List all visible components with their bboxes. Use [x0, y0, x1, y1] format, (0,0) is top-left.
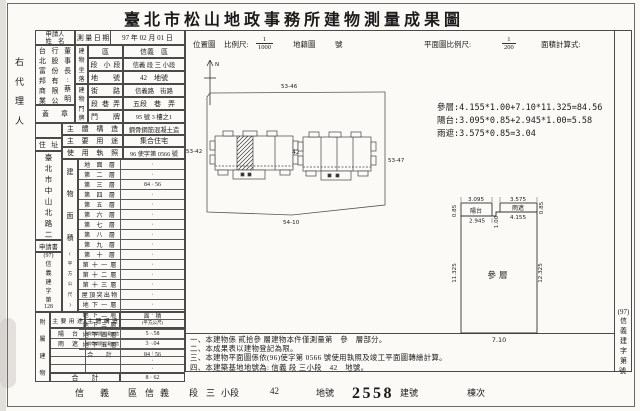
annex-table-row: 雨遮鋼骨鋼筋混凝土造3 · 04: [51, 339, 184, 349]
char: 段: [114, 60, 121, 70]
char: 章: [61, 109, 68, 119]
char: 份: [52, 66, 59, 76]
char: 第: [84, 200, 90, 209]
footer-segment: 小段: [221, 386, 239, 399]
char: 四: [96, 190, 102, 199]
street-value: 信義路 街路: [123, 84, 185, 97]
char: 小: [104, 60, 111, 70]
char: [102, 112, 109, 122]
char: 台: [72, 329, 78, 338]
floor-area-value: ·: [121, 280, 184, 289]
char: 層: [109, 250, 115, 259]
char: 義: [45, 268, 51, 277]
annex-structure-header: 主體構造: [85, 312, 120, 328]
agent-label: 右代理人: [13, 52, 26, 130]
char: 第: [84, 210, 90, 219]
char: 下: [92, 300, 98, 309]
section-value: 信義 段 三 小段: [123, 58, 185, 71]
floor-table-row: 第八層·: [79, 230, 184, 240]
scale-numerator: 1: [263, 36, 266, 43]
footer-segment: 段: [189, 386, 198, 399]
annex-structure-value: 鋼骨鋼筋混凝土造: [86, 339, 121, 348]
address-value: 臺北市中山北路二段50號: [35, 151, 62, 240]
floor-area-value: ·: [121, 160, 184, 169]
char: 門: [78, 104, 84, 113]
char: 八: [96, 230, 102, 239]
char: 七: [96, 220, 102, 229]
floor-label: 地面層: [79, 160, 121, 169]
char: 十: [92, 280, 98, 289]
char: 北: [39, 56, 46, 66]
char: 第: [83, 260, 89, 269]
char: 五: [96, 200, 102, 209]
footer-segment: 建號: [400, 386, 418, 399]
survey-date-label: 測量日期: [75, 30, 111, 45]
dim-canopy-width: 3.575: [510, 197, 526, 203]
floor-label: 第十二層: [79, 270, 121, 279]
section-label: 段 小段: [88, 58, 123, 71]
char: 業: [39, 96, 46, 105]
annex-area-header-line2: (平方公尺): [142, 320, 163, 326]
use-value: 集合住宅: [123, 135, 185, 147]
char: 中: [45, 185, 53, 196]
floor-table-row: 第十一層·: [79, 260, 184, 270]
address-blank-cell: [35, 123, 62, 138]
floor-label: 第四層: [79, 190, 121, 199]
char: 富: [39, 66, 46, 76]
char: 主: [67, 124, 74, 134]
applicant-name-columns: 台北富邦商業銀 行股份有限公司 董事長:蔡明忠: [36, 46, 74, 104]
char: 第: [83, 270, 89, 279]
number-value: 95 號 3 樓之1: [123, 110, 185, 123]
char: 附: [39, 317, 45, 326]
char: 義: [620, 326, 627, 336]
char: 路: [113, 86, 120, 96]
char: 量: [85, 33, 92, 43]
footer-segment: 義: [100, 386, 109, 399]
char: 十: [96, 250, 102, 259]
char: 平: [68, 261, 73, 267]
char: 邦: [39, 76, 46, 86]
canopy-label: 雨遮: [512, 204, 524, 212]
char: 途: [111, 136, 118, 146]
dim-step-height: 1.00: [494, 215, 500, 228]
char: 層: [110, 270, 116, 279]
floor-table-row: 地下一層·: [79, 300, 184, 310]
char: 理: [15, 94, 24, 107]
building-footprint-right: [298, 132, 376, 180]
applicant-name-col-2: 行股份有限公司: [49, 46, 62, 104]
char: 有: [52, 76, 59, 86]
char: 用: [96, 136, 103, 146]
entry-mark: [241, 173, 244, 176]
applicant-name-col-3: 董事長:蔡明忠: [61, 46, 74, 104]
entry-mark: [336, 174, 339, 177]
building-footprint-left: [210, 131, 298, 179]
char: 建: [78, 46, 84, 55]
char: 層: [110, 300, 116, 309]
boundary-label-top: 53-46: [281, 84, 298, 90]
footer-segment: 42: [270, 386, 279, 396]
char: 股: [52, 56, 59, 66]
char: 商: [39, 86, 46, 96]
char: 地: [84, 160, 90, 169]
applicant-header-line2: 姓 名: [46, 38, 65, 45]
survey-document-page: 臺北市松山地政事務所建物測量成果圖 右代理人 申請人 姓 名 台北富邦商業銀 行…: [0, 0, 640, 411]
cadastre-label: 地籍圖: [293, 39, 316, 50]
char: 面: [67, 211, 74, 221]
floor-table-row: 第四層·: [79, 190, 184, 200]
page-title: 臺北市松山地政事務所建物測量成果圖: [0, 6, 640, 30]
char: 門: [91, 112, 98, 122]
char: 董: [64, 46, 71, 56]
footer-segment: 信: [75, 386, 84, 399]
footer-segment: 義: [160, 386, 169, 399]
cadastre-sheet-label: 號: [335, 39, 343, 50]
license-value: 96 使字第 0566 號: [123, 147, 185, 159]
notes-section: 一、本建物係 貳拾參 層建物本件僅測量第 參 層部分。二、本成果表以建物登記為限…: [190, 334, 447, 371]
site-map-scale-label: 比例尺:: [224, 39, 249, 50]
char: 第: [45, 295, 51, 304]
char: 屬: [39, 334, 45, 343]
annex-side-label: 附屬建物: [35, 312, 50, 382]
annex-area-value: ·: [121, 349, 184, 356]
floor-label: 屋頂突出物: [79, 290, 121, 299]
annex-area-value: ·: [121, 365, 184, 372]
char: 體: [95, 316, 101, 325]
char: 巷: [102, 99, 109, 109]
floor-table-row: 第十三層·: [79, 280, 184, 290]
char: 物: [78, 94, 84, 103]
char: 物: [111, 290, 117, 299]
char: 台: [39, 46, 46, 56]
char: 陽: [58, 329, 64, 338]
boundary-label-left: 53-42: [186, 149, 202, 155]
floor-area-value: ·: [121, 200, 184, 209]
char: 號: [113, 73, 120, 83]
char: 合: [72, 373, 79, 382]
annex-use-value: 雨遮: [51, 339, 86, 348]
char: 事: [64, 56, 71, 66]
char: 面: [96, 160, 102, 169]
floor-table-row: 第五層·: [79, 200, 184, 210]
floor-area-value: ·: [121, 240, 184, 249]
parcel-value: 42 地號: [123, 71, 185, 84]
building-number-stamp: 2558: [352, 385, 394, 403]
char: 二: [101, 270, 107, 279]
floor-area-value: ·: [121, 290, 184, 299]
char: 字: [620, 346, 627, 356]
char: 層: [109, 160, 115, 169]
char: 三: [96, 180, 102, 189]
char: ): [69, 302, 71, 307]
char: 層: [109, 240, 115, 249]
char: 方: [68, 271, 73, 277]
char: 第: [84, 250, 90, 259]
north-arrow-icon: N: [204, 60, 219, 105]
char: 途: [77, 316, 83, 325]
char: 地: [91, 73, 98, 83]
floor-table-row: 第六層·: [79, 210, 184, 220]
floor-area-value: ·: [121, 210, 184, 219]
char: 信: [620, 316, 627, 326]
floor-plan-scale-fraction: 1 200: [502, 36, 516, 51]
char: 第: [84, 240, 90, 249]
floor-label: 第五層: [79, 200, 121, 209]
floor-area-value: ·: [121, 230, 184, 239]
floor-label: 第十一層: [79, 260, 121, 269]
note-line: 三、本建物平面圖係依(96)使字第 0566 號使用執照及竣工平面圖轉繪計算。: [190, 352, 447, 361]
annex-use-value: [51, 357, 86, 364]
annex-structure-value: [86, 357, 121, 364]
char: 限: [52, 86, 59, 96]
footer-segment: 棟次: [467, 386, 485, 399]
char: 層: [109, 200, 115, 209]
char: [102, 86, 109, 96]
floor-plan-title: 平面圖比例尺:: [424, 39, 471, 50]
char: 要: [82, 136, 89, 146]
char: 蓋: [42, 109, 49, 119]
char: 區: [102, 47, 109, 57]
char: 照: [111, 148, 118, 158]
site-map-scale-fraction: 1 1000: [256, 36, 273, 51]
char: 第: [84, 190, 90, 199]
floor-label: 第十層: [79, 250, 121, 259]
district-value: 信義 區: [123, 45, 185, 58]
site-map-title: 位置圖: [193, 39, 216, 50]
char: 公: [52, 96, 59, 105]
char: 山: [45, 196, 53, 207]
char: 用: [69, 316, 75, 325]
char: 突: [96, 290, 102, 299]
char: 右: [15, 55, 24, 68]
lane-value: 五段 巷 弄: [123, 97, 185, 110]
footer-segment: 地號: [316, 386, 334, 399]
dim-canopy-depth: 0.85: [539, 201, 545, 214]
floor-area-value: ·: [121, 300, 184, 309]
char: [102, 73, 109, 83]
char: 第: [620, 356, 627, 366]
structure-value: 鋼骨鋼筋混凝土造: [123, 123, 185, 135]
char: 造: [111, 124, 118, 134]
char: 坐: [78, 65, 84, 74]
char: 日: [94, 33, 101, 43]
char: 要: [60, 316, 66, 325]
char: 層: [110, 260, 116, 269]
annex-structure-value: [86, 365, 121, 372]
char: 二: [45, 229, 53, 240]
district-label: 區: [88, 45, 123, 58]
annex-use-value: [51, 349, 86, 356]
char: 臺: [45, 152, 53, 163]
footer-segment: 信: [145, 386, 154, 399]
char: 人: [15, 114, 24, 127]
floor-table-row: 第十層·: [79, 250, 184, 260]
char: 建: [45, 277, 51, 286]
char: 層: [109, 190, 115, 199]
char: (97): [618, 308, 630, 316]
char: 屋: [82, 290, 88, 299]
char: 第: [84, 180, 90, 189]
char: 主: [67, 136, 74, 146]
char: 信: [45, 259, 51, 268]
char: 第: [83, 280, 89, 289]
char: 十: [92, 260, 98, 269]
dim-height-right: 12.325: [538, 263, 544, 283]
annex-table-row: ·: [51, 365, 184, 372]
right-case-number: (97)信義建字第: [615, 308, 632, 366]
number-label: 門 牌: [88, 110, 123, 123]
char: 蔡: [64, 84, 71, 94]
floor-label: 第八層: [79, 230, 121, 239]
char: 落: [78, 74, 84, 83]
char: 用: [82, 148, 89, 158]
char: 長: [64, 66, 71, 76]
lane-label: 段巷弄: [88, 97, 123, 110]
char: 二: [96, 170, 102, 179]
char: (: [69, 251, 71, 256]
dim-width-bottom: 7.10: [492, 336, 506, 344]
boundary-label-right: 53-47: [388, 158, 405, 164]
char: 物: [39, 368, 45, 377]
annex-area-value: 3 · 04: [121, 339, 184, 348]
floor-area-table: 地面層·第二層·第三層84 · 56第四層·第五層·第六層·第七層·第八層·第九…: [78, 159, 185, 312]
char: 段: [91, 99, 98, 109]
north-label: N: [215, 62, 219, 68]
annex-structure-value: [86, 349, 121, 356]
floor-area-value: ·: [121, 220, 184, 229]
floor-area-value: ·: [121, 270, 184, 279]
license-label: 使用執照: [62, 147, 123, 159]
char: 物: [78, 55, 84, 64]
footer-segment: 三: [206, 386, 215, 399]
applicant-header-line1: 申請人: [46, 31, 65, 38]
annex-area-value: ·: [121, 357, 184, 364]
char: 執: [96, 148, 103, 158]
street-label: 街 路: [88, 84, 123, 97]
char: :: [67, 76, 69, 84]
dim-balcony-depth: 0.85: [452, 204, 458, 217]
annex-area-value: 5 · 58: [121, 329, 184, 338]
floor-table-row: 地面層·: [79, 160, 184, 170]
annex-use-value: 陽台: [51, 329, 86, 338]
floor-label: 地下一層: [79, 300, 121, 309]
char: 第: [84, 230, 90, 239]
char: 北: [45, 163, 53, 174]
dim-balcony-inner: 2.945: [469, 219, 485, 225]
floor-area-value: ·: [121, 250, 184, 259]
plan-scale-numerator: 1: [507, 36, 510, 43]
char: 測: [77, 33, 84, 43]
entry-mark: [248, 173, 251, 176]
char: 建: [39, 351, 45, 360]
applicant-name-cell: 台北富邦商業銀 行股份有限公司 董事長:蔡明忠: [35, 45, 75, 105]
floor-table-row: 第七層·: [79, 220, 184, 230]
application-case-number: (97)信義建字第128號: [35, 252, 62, 312]
floor-table-row: 第十二層·: [79, 270, 184, 280]
seal-cell: 蓋章: [35, 105, 75, 123]
floor-label: 第二層: [79, 170, 121, 179]
dim-height-left: 11.325: [452, 263, 458, 283]
annex-use-header: 主要用途: [50, 312, 85, 328]
char: 期: [102, 33, 109, 43]
char: 遮: [72, 339, 78, 348]
char: 積: [67, 233, 74, 243]
char: 住: [39, 140, 46, 150]
char: 字: [45, 286, 51, 295]
char: 一: [101, 260, 107, 269]
char: 建: [67, 167, 74, 177]
applicant-header: 申請人 姓 名: [35, 30, 75, 45]
char: 弄: [113, 99, 120, 109]
building-location-label: 建物坐落: [75, 45, 88, 84]
char: 使: [67, 148, 74, 158]
annex-table-row: ·: [51, 349, 184, 357]
annex-area-header: 面積 (平方公尺): [120, 312, 185, 328]
floor-table-row: 第九層·: [79, 240, 184, 250]
char: 址: [51, 140, 58, 150]
note-line: 四、本建築基地地號為: 信義 段 三小段 42 地號。: [190, 362, 447, 371]
char: 主: [52, 316, 58, 325]
char: 層: [109, 170, 115, 179]
char: 造: [112, 316, 118, 325]
seal-label: 蓋章: [36, 106, 74, 122]
survey-date-value: 97 年 02 月 01 日: [110, 30, 185, 45]
floor-area-value: ·: [121, 190, 184, 199]
note-line: 二、本成果表以建物登記為限。: [190, 343, 447, 352]
char: 六: [96, 210, 102, 219]
use-label: 主要用途: [62, 135, 123, 147]
char: 頂: [89, 290, 95, 299]
char: 層: [109, 180, 115, 189]
char: 層: [110, 280, 116, 289]
floor-table-row: 第二層·: [79, 170, 184, 180]
floor-area-side-label: 建物面積 (平方公尺): [62, 159, 78, 312]
char: 層: [109, 220, 115, 229]
char: 北: [45, 207, 53, 218]
char: 九: [96, 240, 102, 249]
char: 計: [92, 373, 99, 382]
entry-mark: [328, 174, 331, 177]
char: 層: [109, 230, 115, 239]
parcel-label: 地 號: [88, 71, 123, 84]
footer-strip: 信義區信義段三小段42地號建號棟次2558: [0, 383, 640, 409]
room-label: 參層: [487, 270, 510, 281]
char: 構: [104, 316, 110, 325]
floor-table-row: 屋頂突出物·: [79, 290, 184, 300]
application-header: 申請書: [35, 240, 62, 252]
floor-label: 第七層: [79, 220, 121, 229]
annex-use-value: [51, 365, 86, 372]
floor-label: 第三層: [79, 180, 121, 189]
annex-table-rows: 陽台鋼骨鋼筋混凝土造5 · 58雨遮鋼骨鋼筋混凝土造3 · 04···: [50, 328, 185, 373]
char: 出: [104, 290, 110, 299]
floor-area-value: ·: [121, 170, 184, 179]
char: 市: [45, 174, 53, 185]
boundary-label-bottom: 54-10: [283, 220, 300, 226]
char: 體: [82, 124, 89, 134]
applicant-name-col-1: 台北富邦商業銀: [36, 46, 49, 104]
structure-label: 主體構造: [62, 123, 123, 135]
char: 牌: [113, 112, 120, 122]
char: 路: [45, 218, 53, 229]
balcony-label: 陽台: [470, 207, 482, 215]
char: 主: [87, 316, 93, 325]
area-calc-label: 面積計算式:: [541, 39, 581, 50]
char: 第: [84, 170, 90, 179]
annex-structure-value: 鋼骨鋼筋混凝土造: [86, 329, 121, 338]
annex-table-row: 陽台鋼骨鋼筋混凝土造5 · 58: [51, 329, 184, 339]
